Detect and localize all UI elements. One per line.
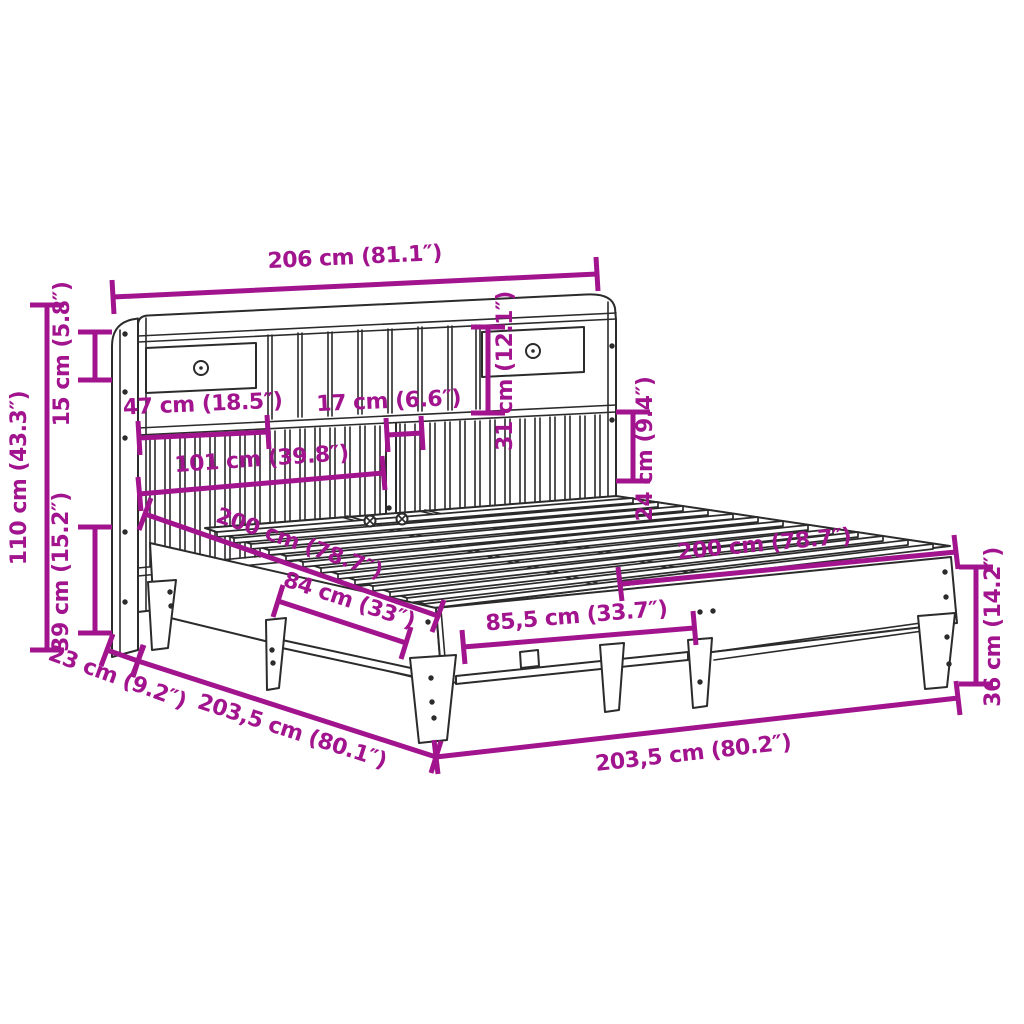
dim-label-lower-opening-height: 24 cm (9.4″) <box>633 377 658 522</box>
drawer-right-knob-center <box>531 349 535 353</box>
dim-frame-height-right: 36 cm (14.2″) <box>959 547 1006 707</box>
product-dimension-diagram: 206 cm (81.1″) 15 cm (5.8″) 110 cm (43.3… <box>0 0 1024 1024</box>
dim-base-height-left: 39 cm (15.2″) <box>49 492 112 652</box>
dim-label-overall-width: 206 cm (81.1″) <box>267 241 442 274</box>
center-bracket <box>520 650 539 668</box>
leg-foot-middle-left <box>600 643 624 712</box>
headboard-side-panel <box>112 319 138 658</box>
drawer-left-knob-center <box>199 366 203 370</box>
dim-label-upper-opening-height: 31 cm (12.1″) <box>493 291 518 451</box>
leg-foot-corner-far <box>918 613 955 689</box>
dimension-line <box>78 332 112 380</box>
drawer-left <box>146 343 256 393</box>
dim-label-headboard-total-height: 110 cm (43.3″) <box>7 391 32 565</box>
dim-label-frame-height-right: 36 cm (14.2″) <box>981 547 1006 707</box>
leg-side-middle <box>266 618 286 690</box>
leg-foot-middle-right <box>688 638 712 708</box>
dim-label-base-height-left: 39 cm (15.2″) <box>49 492 74 652</box>
leg-foot-corner-near <box>410 655 456 743</box>
dimension-line <box>78 527 112 633</box>
